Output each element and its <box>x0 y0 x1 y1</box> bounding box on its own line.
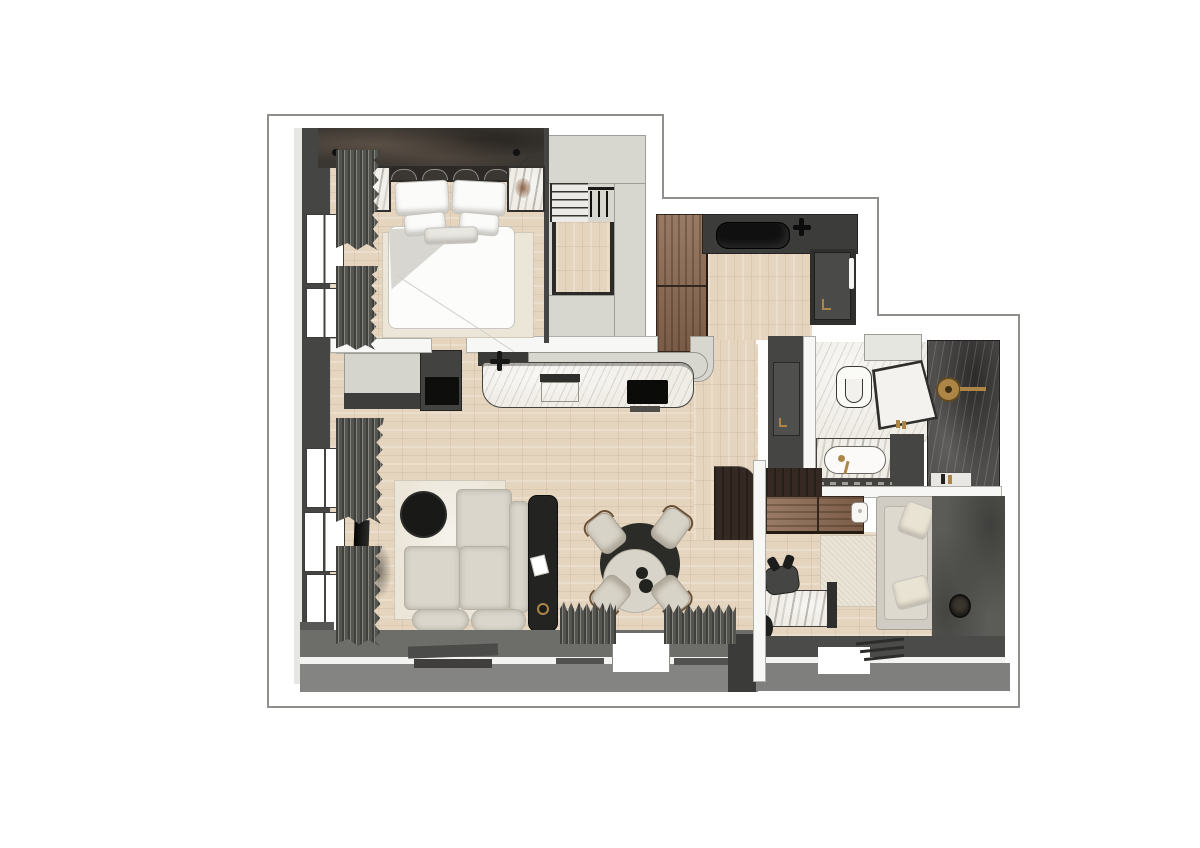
curtain <box>560 600 616 644</box>
curtain <box>336 546 382 646</box>
curtain <box>336 266 378 350</box>
curtains <box>0 0 1200 848</box>
curtain <box>664 602 736 644</box>
curtain <box>336 418 384 524</box>
floor-plan-canvas <box>0 0 1200 848</box>
curtain <box>336 150 380 250</box>
